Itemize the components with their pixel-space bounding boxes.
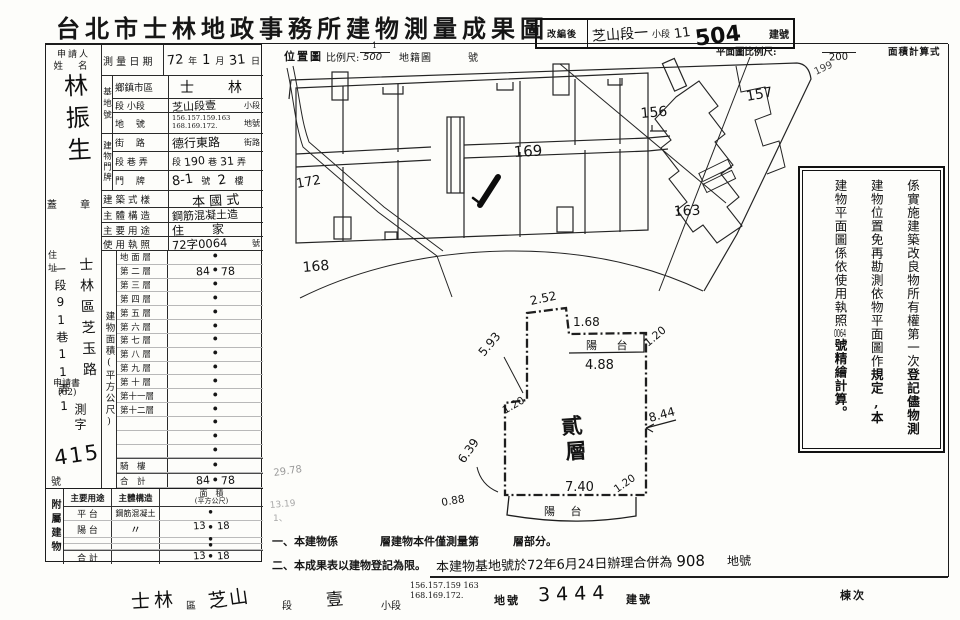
floor-row-value: • — [167, 251, 263, 264]
day-label: 日 — [251, 54, 260, 67]
attached-area-frac: 18 — [216, 521, 229, 533]
floor-row-value: • — [167, 362, 263, 375]
seal-label: 蓋 章 — [46, 196, 101, 211]
section-suffix: 小段 — [244, 100, 260, 111]
floor-row: • — [117, 445, 263, 459]
decimal-dot: • — [212, 388, 219, 401]
section-value: 芝山段壹 — [172, 96, 217, 114]
stamp-c2-normal: 建物位置免再勘測依物平面圖作 — [869, 179, 884, 368]
floor-row: 第 六 層• — [117, 320, 263, 334]
attached-vlabel-text: 附屬建物 — [47, 499, 62, 555]
decimal-dot: • — [212, 319, 219, 332]
parcel-168-label: 168 — [302, 258, 330, 276]
attached-structure — [112, 544, 160, 549]
strip-subsection-label: 小段 — [381, 597, 401, 612]
group-door-text: 建物門牌 — [101, 141, 113, 183]
floor-row: 第十二層• — [117, 403, 263, 417]
pencil-note-b: 13.19 — [269, 499, 296, 511]
lane-no1: 190 — [183, 153, 205, 168]
row-door-plate: 門 牌 8-1 號 2 樓 — [113, 171, 263, 191]
parcel-199-label: 199 — [813, 60, 835, 78]
stamp-column-2: 建物位置免再勘測依物平面圖作規定,本 — [858, 179, 894, 440]
strip-section-label: 段 — [282, 597, 292, 612]
attached-structure: 〃 — [112, 521, 160, 537]
land-no-suffix: 地號 — [244, 118, 260, 129]
note-1: 一、本建物係層建物本件僅測量第層部分。 — [272, 533, 557, 549]
floor-row-value: • — [167, 445, 263, 458]
merge-note-number: 908 — [676, 552, 705, 571]
dim-088: 0.88 — [440, 493, 465, 509]
street-label: 街 路 — [113, 134, 168, 151]
pencil-note-c: 1、 — [273, 514, 288, 524]
attached-use — [64, 544, 112, 549]
floor-row-label: 第 七 層 — [117, 334, 167, 347]
row-building-style: 建 築 式 樣 本 國 式 — [101, 191, 263, 208]
floor-row-value: • — [167, 348, 263, 361]
address-line1: 士林區芝玉路 — [75, 257, 101, 426]
floor-row-label: 第 三 層 — [117, 279, 167, 292]
floor-row-label: 騎 樓 — [117, 459, 167, 472]
dim-639: 6.39 — [455, 436, 482, 466]
strip-land-no-label: 地號 — [494, 592, 520, 608]
merge-note-suffix: 地號 — [727, 552, 751, 569]
stamp-column-3: 建物平面圖係依使用執照0064號精繪計算。 — [821, 179, 857, 440]
application-doc-suffix: 號 — [51, 473, 61, 488]
parcel-156-label: 156 — [640, 104, 668, 122]
floor-row-value: • — [167, 459, 263, 472]
applicant-name: 林振生 — [56, 72, 97, 192]
section-label: 段 小段 — [113, 99, 168, 112]
decimal-dot: • — [212, 374, 219, 387]
decimal-dot: • — [207, 551, 213, 562]
door-plate-label: 門 牌 — [113, 171, 168, 190]
attached-structure — [112, 551, 160, 564]
floor-row-label: 合 計 — [117, 474, 167, 487]
dim-488: 4.88 — [585, 358, 614, 373]
dim-593: 5.93 — [476, 329, 504, 358]
lane-label: 段 巷 弄 — [113, 152, 168, 170]
attached-structure: 鋼筋混凝土 — [112, 507, 160, 520]
lane-word: 巷 — [208, 155, 217, 168]
stamp-c2-bold: 規定,本 — [869, 368, 884, 425]
strip-subsection-hand: 壹 — [325, 584, 344, 610]
license-suffix: 號 — [252, 238, 260, 249]
stamp-license-no-hand: 0064 — [834, 328, 847, 339]
floor-row-value: • — [167, 403, 263, 416]
usage-label: 主 要 用 途 — [101, 223, 168, 236]
renumber-label: 改編後 — [537, 20, 588, 47]
application-doc-year: (62) — [58, 388, 76, 398]
door-no: 8-1 — [171, 172, 194, 190]
dim-252: 2.52 — [529, 289, 558, 308]
stamp-c1-normal: 係實施建築改良物所有權第一次 — [905, 179, 920, 368]
dim-120a: 1.20 — [642, 324, 669, 350]
attached-struct-header: 主體構造 — [112, 489, 160, 506]
floor-row-value: • — [167, 292, 263, 305]
floor-row-label — [117, 445, 167, 458]
floor-row-label: 第 二 層 — [117, 265, 167, 278]
floor-rows: 地 面 層•第 二 層•8478第 三 層•第 四 層•第 五 層•第 六 層•… — [117, 251, 263, 488]
application-doc-no: 415 — [53, 440, 102, 470]
floor-row-value: • — [167, 375, 263, 388]
floor-row-value: • — [167, 334, 263, 347]
strip-block-label: 棟次 — [840, 587, 866, 603]
dim-740: 7.40 — [565, 480, 594, 495]
dim-120c: 1.20 — [612, 472, 638, 495]
floor-row-label: 第十二層 — [117, 403, 167, 416]
land-no-line2: 168.169.172. — [172, 123, 230, 131]
year-label: 年 — [188, 54, 197, 67]
row-license: 使 用 執 照 72字0064 號 — [101, 237, 263, 251]
floor-row-label: 第 九 層 — [117, 362, 167, 375]
attached-area-int: 13 — [192, 551, 205, 563]
floor-row: 第十一層• — [117, 389, 263, 403]
floor-area-frac: 78 — [220, 474, 235, 488]
attached-building-table: 附屬建物 主要用途 主體構造 面 積 (平方公尺) 平 台鋼筋混凝土•陽 台〃•… — [46, 488, 263, 564]
note-1-part-b: 層建物本件僅測量第 — [380, 535, 479, 548]
floor-row: 地 面 層• — [117, 251, 263, 265]
attached-row: 平 台鋼筋混凝土• — [64, 507, 263, 521]
floor-row-value: • — [167, 417, 263, 430]
group-door-label: 建物門牌 — [101, 134, 113, 191]
note-1-part-c: 層部分。 — [513, 535, 557, 548]
attached-area-header-unit: (平方公尺) — [195, 498, 228, 505]
attached-vlabel: 附屬建物 — [46, 489, 64, 564]
floor-row: 第 十 層• — [117, 375, 263, 389]
floor-row-label: 第 十 層 — [117, 375, 167, 388]
stamp-c3-normal: 建物平面圖係依使用執照 — [833, 179, 848, 328]
balcony-top-label: 陽 台 — [586, 338, 636, 352]
attached-use: 合 計 — [64, 551, 112, 564]
dim-168: 1.68 — [573, 315, 600, 329]
decimal-dot: • — [212, 402, 219, 415]
strip-land-numbers: 156.157.159 163 168.169.172. — [410, 581, 479, 602]
row-lane: 段 巷 弄 段 190 巷 31 弄 — [113, 152, 263, 171]
street-value: 德行東路 — [172, 133, 221, 152]
strip-building-no-label: 建號 — [626, 591, 652, 607]
floor-row: 第 七 層• — [117, 334, 263, 348]
checkmark-icon — [473, 177, 498, 205]
group-land-text: 基地號 — [101, 87, 113, 122]
strip-land-numbers-line1: 156.157.159 163 — [410, 581, 479, 591]
floor-row: 第 四 層• — [117, 292, 263, 306]
month-label: 月 — [215, 54, 224, 67]
district-value: 士 林 — [180, 77, 252, 97]
door-floor-label: 樓 — [235, 174, 244, 187]
attached-use — [64, 538, 112, 543]
decimal-dot: • — [212, 250, 219, 263]
lane-seg-label: 段 — [172, 155, 181, 168]
renumber-section-hand: 芝山段一 — [591, 22, 648, 46]
decimal-dot: • — [207, 540, 213, 551]
attached-structure — [112, 538, 160, 543]
row-usage: 主 要 用 途 住 家 — [101, 223, 263, 237]
floor-row-label: 第 五 層 — [117, 306, 167, 319]
dim-120b: 1.20 — [501, 395, 527, 417]
floor-row-value: • — [167, 431, 263, 444]
decimal-dot: • — [212, 291, 219, 304]
floor-row: 合 計•8478 — [117, 473, 263, 488]
parcel-163-label: 163 — [673, 203, 701, 220]
floor-row: 第 九 層• — [117, 362, 263, 376]
registration-stamp: 係實施建築改良物所有權第一次登記儘物測 建物位置免再勘測依物平面圖作規定,本 建… — [798, 166, 945, 453]
attached-area: • — [160, 544, 263, 549]
attached-row: 陽 台〃•1318 — [64, 521, 263, 538]
floor-row-value: • — [167, 389, 263, 402]
floor-row: • — [117, 417, 263, 431]
strip-district-hand: 士林 — [130, 585, 177, 614]
decimal-dot: • — [212, 473, 219, 486]
floor-row-value: •8478 — [167, 474, 263, 487]
floor-area-frac: 78 — [220, 264, 235, 278]
decimal-dot: • — [212, 416, 219, 429]
building-style-label: 建 築 式 樣 — [101, 191, 168, 207]
note-1-part-a: 一、本建物係 — [272, 535, 338, 548]
parcel-172-label: 172 — [295, 173, 322, 192]
area-table-vlabel-text: 建物面積(平方公尺) — [102, 311, 116, 429]
survey-form: 申請人 姓 名 林振生 蓋 章 住 址 士林區芝玉路 一段91巷11弄1 申請書… — [45, 44, 262, 562]
floor-row: 騎 樓• — [117, 458, 263, 473]
decimal-dot: • — [212, 347, 219, 360]
strip-section-hand: 芝山 — [206, 581, 251, 614]
floor-label-char1: 貳 — [561, 414, 584, 439]
floor-row-label: 第十一層 — [117, 389, 167, 402]
door-no-label: 號 — [201, 174, 210, 187]
strip-building-no-hand: 3444 — [538, 582, 611, 607]
renumber-subsection-label: 小段 — [652, 27, 670, 40]
decimal-dot: • — [212, 430, 219, 443]
attached-use-header: 主要用途 — [64, 489, 112, 506]
structure-label: 主 體 構 造 — [101, 208, 168, 222]
decimal-dot: • — [207, 507, 213, 518]
decimal-dot: • — [212, 458, 219, 471]
floor-row-value: • — [167, 306, 263, 319]
floor-row-label — [117, 417, 167, 430]
road-line-2 — [293, 66, 443, 251]
decimal-dot: • — [212, 360, 219, 373]
map-boundary — [289, 63, 811, 291]
attached-area: • — [160, 507, 263, 520]
page-title: 台北市士林地政事務所建物測量成果圖 — [56, 9, 549, 44]
address-line2: 一段91巷11弄1 — [51, 263, 74, 431]
decimal-dot: • — [207, 523, 213, 534]
decimal-dot: • — [212, 264, 219, 277]
row-district: 鄉鎮市區 士 林 — [113, 76, 263, 99]
district-label: 鄉鎮市區 — [113, 76, 168, 98]
alley-word: 弄 — [237, 155, 246, 168]
floor-area-int: 84 — [195, 474, 210, 488]
floor-row-label: 地 面 層 — [117, 251, 167, 264]
door-floor-no: 2 — [217, 172, 228, 188]
renumber-suffix: 建號 — [769, 26, 789, 41]
street-suffix: 街路 — [244, 137, 260, 148]
dim-844: 8.44 — [647, 404, 676, 424]
floor-row-label: 第 四 層 — [117, 292, 167, 305]
attached-use: 陽 台 — [64, 521, 112, 537]
land-no-label: 地 號 — [113, 113, 168, 133]
stamp-column-1: 係實施建築改良物所有權第一次登記儘物測 — [894, 179, 930, 440]
application-doc-word: 測字 — [72, 403, 89, 443]
strip-district-label: 區 — [186, 597, 196, 612]
floor-row: 第 三 層• — [117, 279, 263, 293]
floor-row-value: •8478 — [167, 265, 263, 278]
decimal-dot: • — [212, 333, 219, 346]
floor-row: 第 五 層• — [117, 306, 263, 320]
attached-area-frac: 18 — [216, 551, 229, 563]
decimal-dot: • — [212, 443, 219, 456]
floor-row-value: • — [167, 279, 263, 292]
balcony-bottom-label: 陽 台 — [544, 504, 588, 518]
row-section: 段 小段 芝山段壹 小段 — [113, 99, 263, 113]
stamp-c1-bold: 登記儘物測 — [905, 368, 920, 436]
bottom-terrain-curve — [300, 251, 703, 298]
stamp-c3-bold: 號精繪計算。 — [833, 339, 848, 420]
row-survey-date: 測 量 日 期 72 年 1 月 31 日 — [101, 45, 263, 76]
floor-row: 第 八 層• — [117, 348, 263, 362]
survey-document: 台北市士林地政事務所建物測量成果圖 改編後 芝山段一 小段 11 504 建號 … — [0, 0, 960, 620]
floor-row-value: • — [167, 320, 263, 333]
floor-row-label: 第 八 層 — [117, 348, 167, 361]
group-land-label: 基地號 — [101, 76, 113, 134]
decimal-dot: • — [212, 278, 219, 291]
strip-land-numbers-line2: 168.169.172. — [410, 591, 479, 601]
lane-no2: 31 — [220, 154, 235, 168]
survey-date-month: 1 — [202, 53, 210, 68]
attached-row: 合 計•1318 — [64, 550, 263, 564]
floor-row: 第 二 層•8478 — [117, 265, 263, 279]
pencil-note-a: 29.78 — [273, 464, 303, 479]
floor-row-label: 第 六 層 — [117, 320, 167, 333]
diagonal-line-2 — [659, 57, 750, 291]
renumber-number1: 11 — [673, 25, 691, 42]
survey-date-day: 31 — [229, 52, 247, 69]
area-table-vlabel: 建物面積(平方公尺) — [101, 251, 117, 488]
survey-date-label: 測 量 日 期 — [101, 45, 163, 75]
parcel-169-label: 169 — [513, 142, 543, 161]
row-land-no: 地 號 156.157.159.163 168.169.172. 地號 — [113, 113, 263, 134]
note-2: 二、本成果表以建物登記為限。 — [272, 557, 426, 573]
attached-area-int: 13 — [192, 521, 205, 533]
license-label: 使 用 執 照 — [101, 237, 168, 250]
floor-row-label — [117, 431, 167, 444]
applicant-name-label: 姓 名 — [46, 58, 101, 72]
floor-label-char2: 層 — [565, 439, 588, 464]
location-map — [287, 57, 811, 298]
decimal-dot: • — [212, 305, 219, 318]
attached-rows: 平 台鋼筋混凝土•陽 台〃•1318••合 計•1318 — [64, 507, 263, 564]
floor-row: • — [117, 431, 263, 445]
row-street: 街 路 德行東路 街路 — [113, 134, 263, 152]
attached-use: 平 台 — [64, 507, 112, 520]
parcel-157-label: 157 — [745, 85, 774, 105]
floor-plan-outline — [505, 308, 646, 495]
floor-area-int: 84 — [195, 264, 210, 278]
parcel-157-boundary — [736, 66, 785, 174]
survey-date-year: 72 — [166, 52, 184, 68]
attached-area: •1318 — [160, 551, 263, 564]
